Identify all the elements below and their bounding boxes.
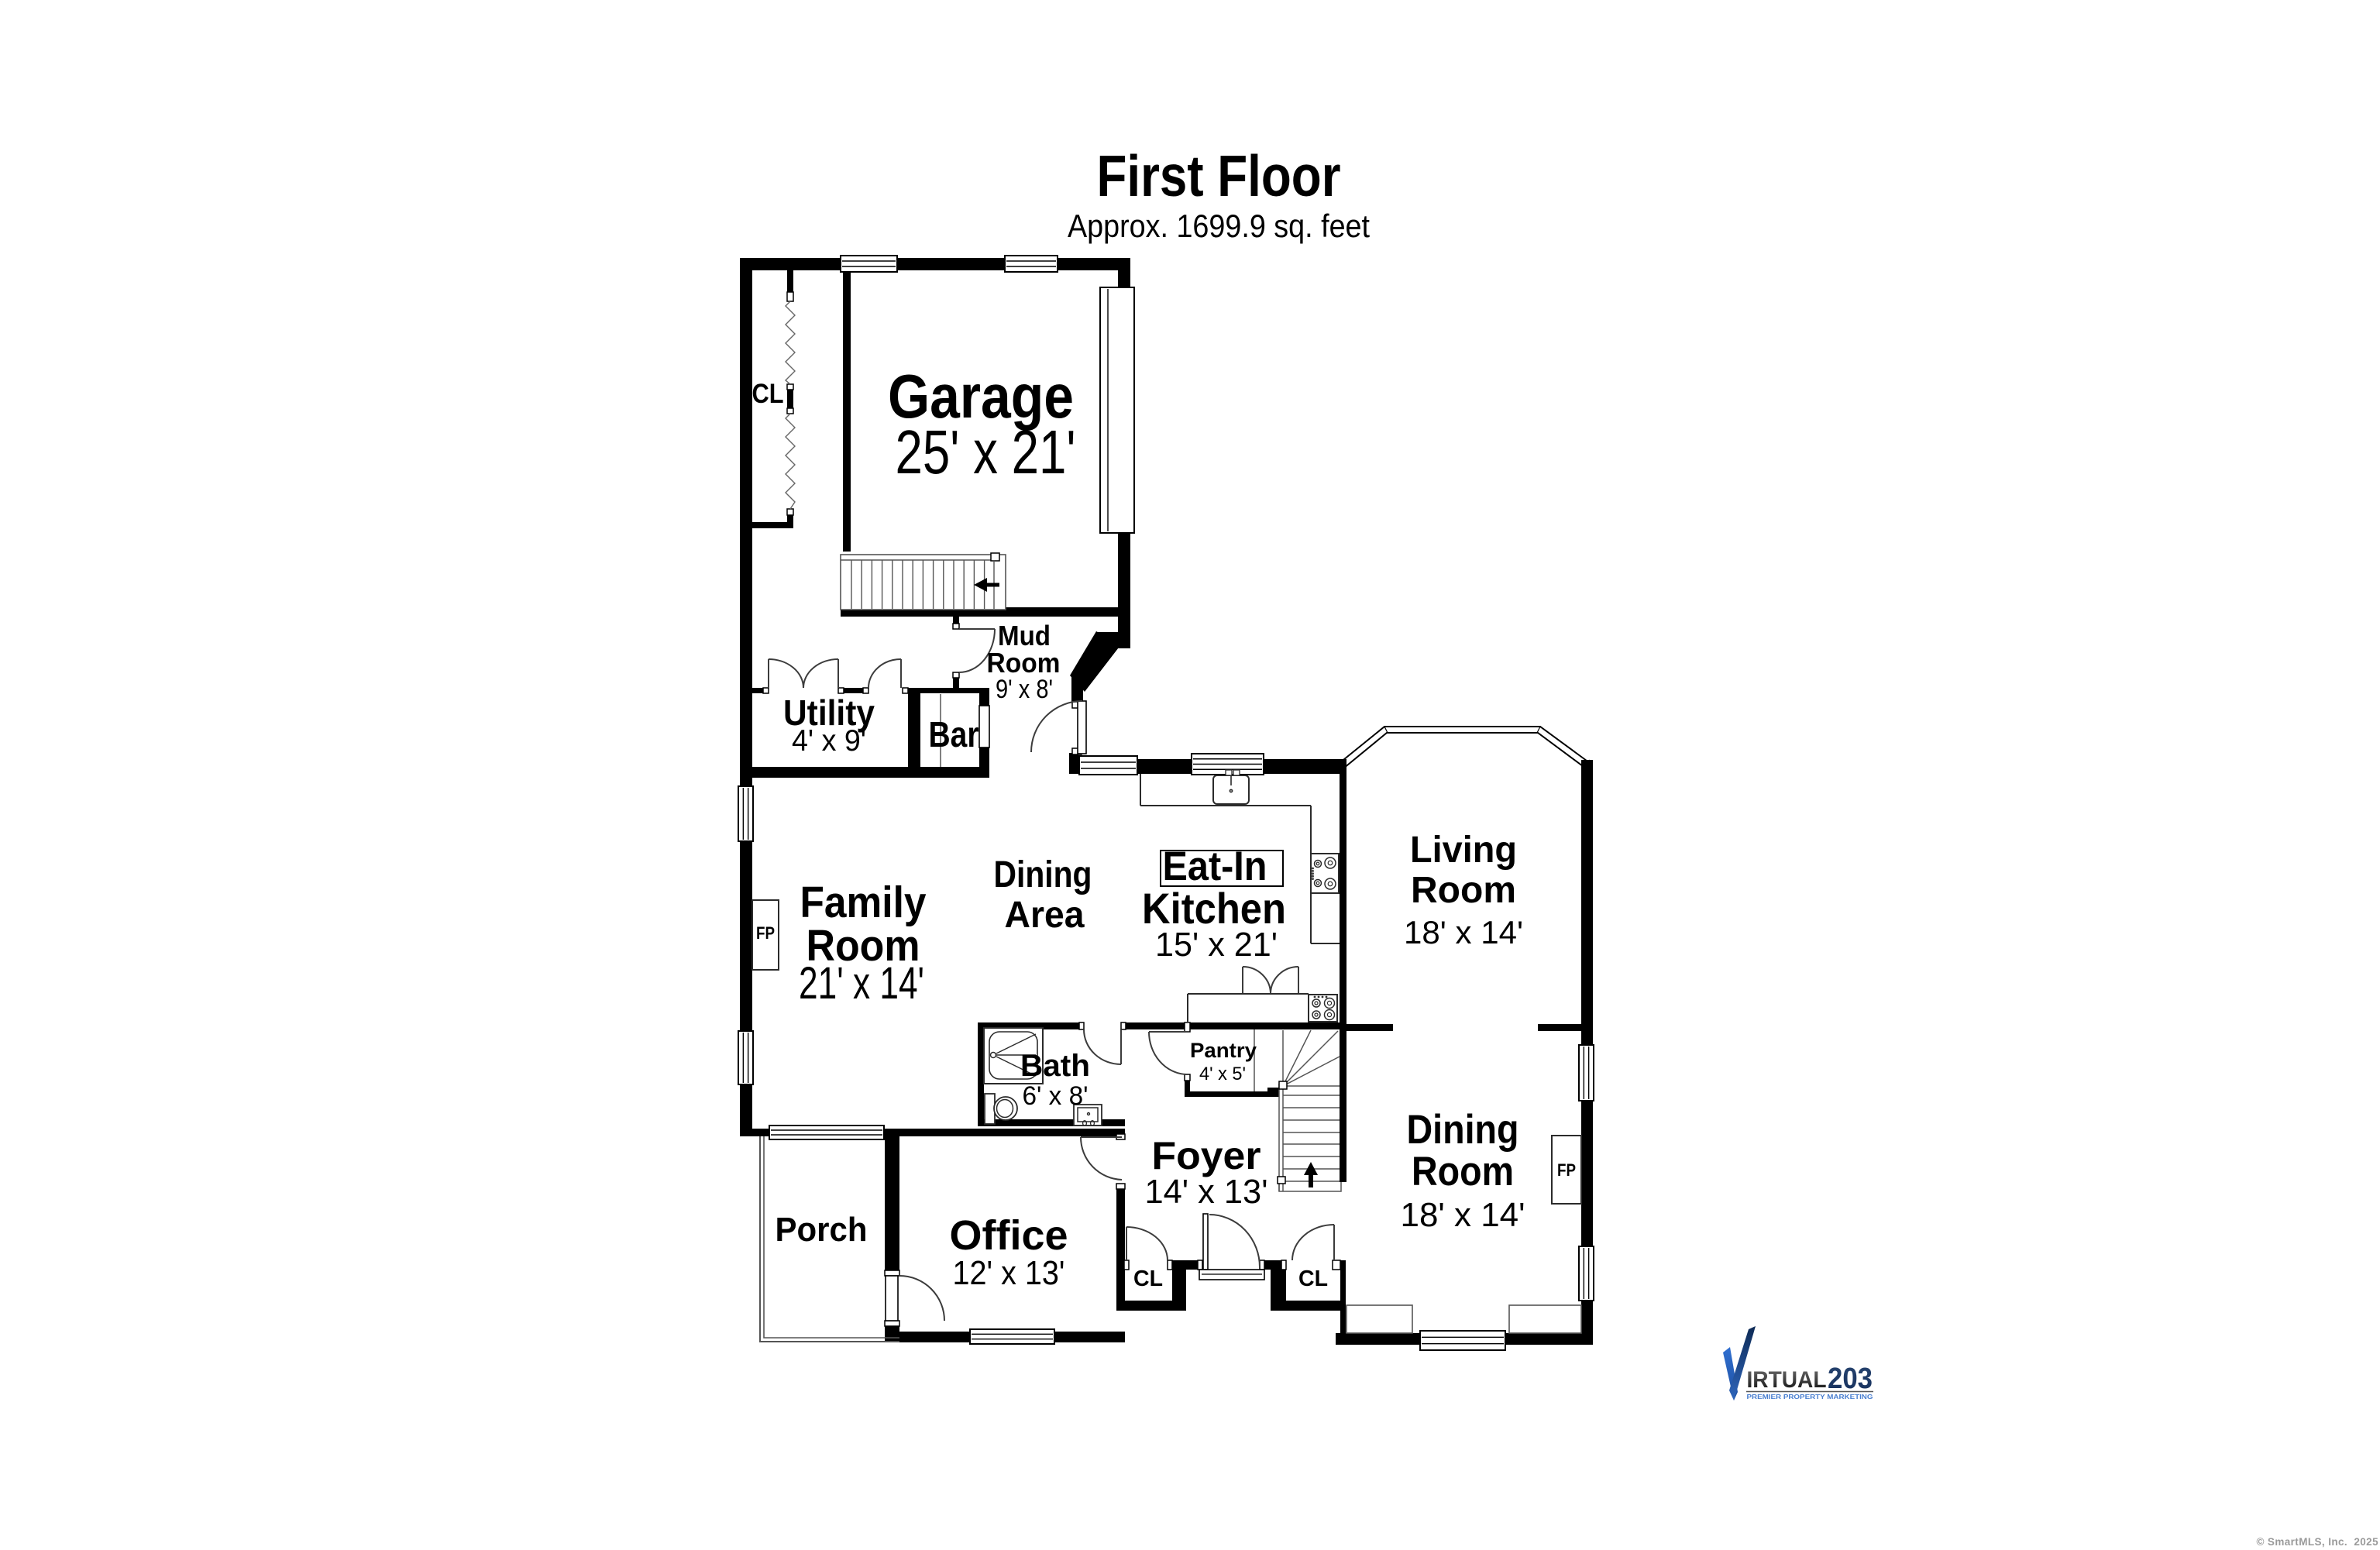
svg-text:Room: Room [987, 647, 1061, 679]
svg-text:Office: Office [950, 1212, 1068, 1259]
svg-text:6' x 8': 6' x 8' [1023, 1081, 1089, 1111]
svg-text:Porch: Porch [776, 1211, 868, 1249]
svg-text:15' x 21': 15' x 21' [1155, 926, 1278, 964]
svg-text:Bath: Bath [1020, 1049, 1090, 1083]
svg-text:12' x 13': 12' x 13' [953, 1254, 1065, 1292]
svg-text:Living: Living [1410, 830, 1517, 871]
svg-text:Family: Family [800, 878, 927, 927]
svg-text:IRTUAL: IRTUAL [1747, 1367, 1827, 1393]
svg-text:Room: Room [1412, 1149, 1514, 1194]
svg-text:4' x 5': 4' x 5' [1199, 1064, 1246, 1084]
svg-text:Eat-In: Eat-In [1163, 844, 1267, 889]
svg-text:CL: CL [752, 379, 784, 409]
svg-text:21' x 14': 21' x 14' [799, 958, 924, 1009]
svg-text:Pantry: Pantry [1190, 1039, 1257, 1062]
svg-text:PREMIER PROPERTY MARKETING: PREMIER PROPERTY MARKETING [1747, 1394, 1873, 1400]
svg-text:18' x 14': 18' x 14' [1401, 1196, 1525, 1234]
svg-text:Dining: Dining [994, 854, 1092, 895]
svg-text:Area: Area [1005, 895, 1085, 936]
svg-text:First Floor: First Floor [1097, 143, 1341, 208]
svg-text:Foyer: Foyer [1152, 1134, 1261, 1177]
svg-text:203: 203 [1828, 1363, 1873, 1395]
svg-text:Bar: Bar [929, 714, 979, 754]
svg-text:CL: CL [1133, 1266, 1163, 1291]
svg-text:4' x 9': 4' x 9' [792, 724, 866, 758]
svg-text:Dining: Dining [1407, 1107, 1519, 1153]
svg-text:FP: FP [1557, 1160, 1576, 1180]
svg-text:9' x 8': 9' x 8' [996, 675, 1053, 704]
svg-text:25' x 21': 25' x 21' [896, 418, 1076, 486]
svg-text:FP: FP [756, 923, 775, 943]
svg-text:Room: Room [1411, 870, 1516, 911]
svg-text:14' x 13': 14' x 13' [1145, 1173, 1268, 1211]
svg-text:CL: CL [1298, 1266, 1328, 1291]
svg-text:Approx. 1699.9 sq. feet: Approx. 1699.9 sq. feet [1068, 208, 1370, 244]
svg-text:© SmartMLS, Inc. 2025: © SmartMLS, Inc. 2025 [2256, 1536, 2378, 1548]
svg-text:18' x 14': 18' x 14' [1404, 914, 1523, 950]
